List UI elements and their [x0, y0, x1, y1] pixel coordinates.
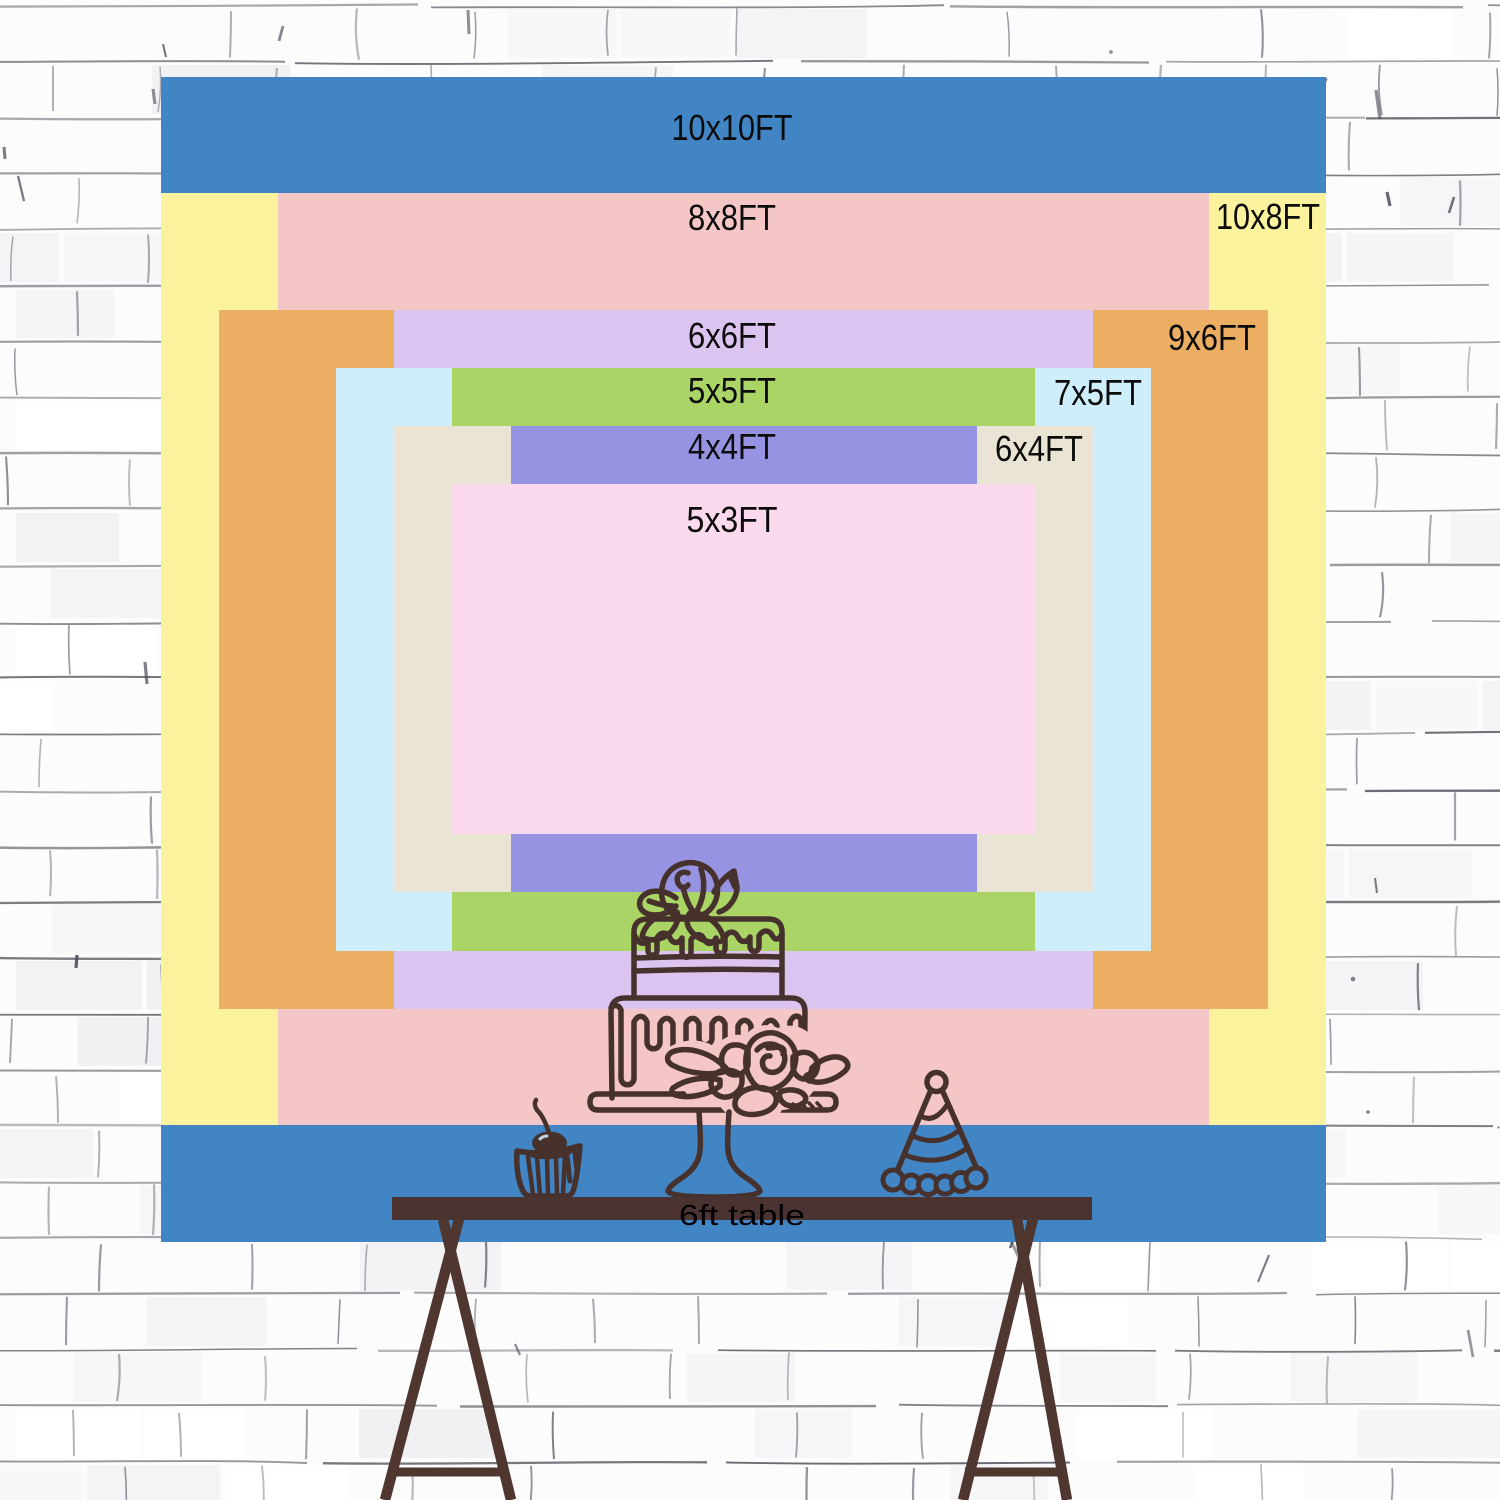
- svg-text:5x3FT: 5x3FT: [687, 499, 778, 540]
- svg-text:6x6FT: 6x6FT: [688, 315, 776, 356]
- svg-text:7x5FT: 7x5FT: [1054, 372, 1142, 413]
- svg-text:10x10FT: 10x10FT: [672, 107, 793, 148]
- svg-text:4x4FT: 4x4FT: [688, 426, 776, 467]
- svg-text:6x4FT: 6x4FT: [995, 428, 1083, 469]
- svg-text:5x5FT: 5x5FT: [688, 370, 776, 411]
- svg-text:10x8FT: 10x8FT: [1216, 196, 1320, 237]
- svg-text:6ft table: 6ft table: [679, 1200, 805, 1232]
- svg-text:9x6FT: 9x6FT: [1168, 317, 1256, 358]
- svg-text:8x8FT: 8x8FT: [688, 197, 776, 238]
